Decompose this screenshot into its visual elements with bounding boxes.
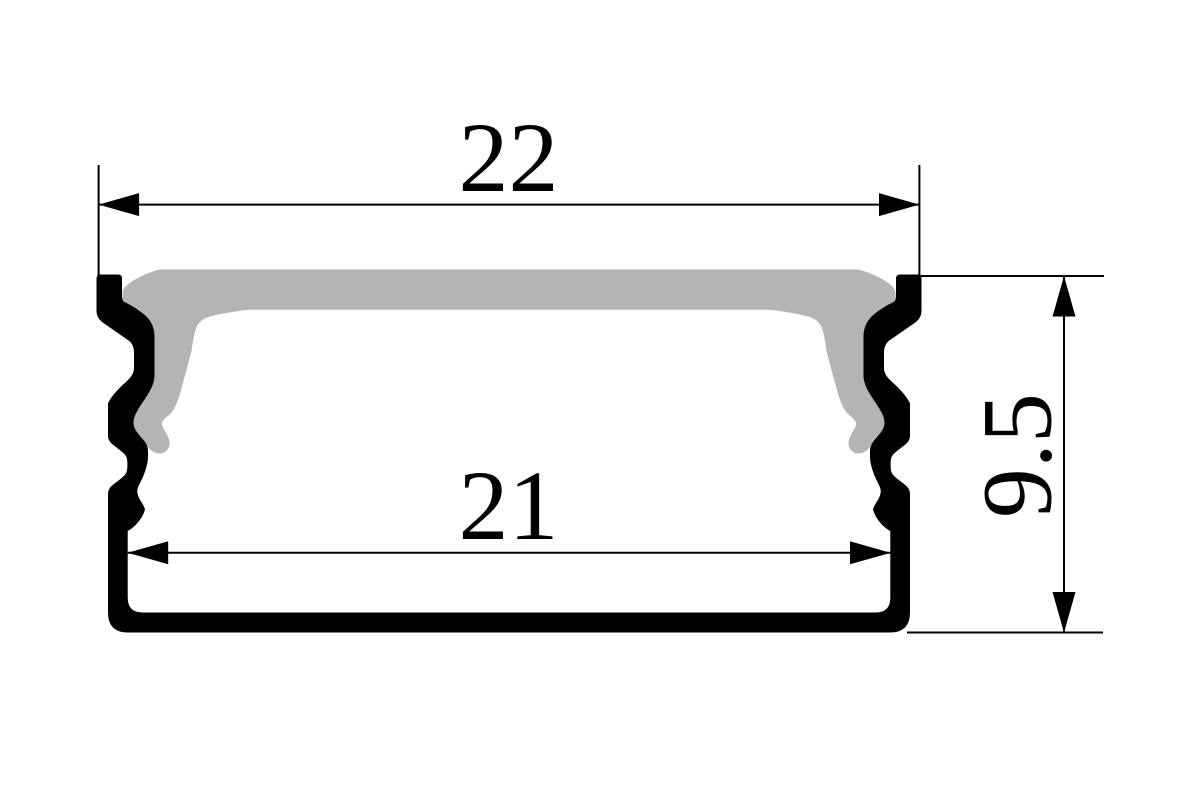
svg-text:9.5: 9.5 [962,393,1073,518]
svg-text:21: 21 [459,450,559,561]
svg-text:22: 22 [459,102,559,213]
